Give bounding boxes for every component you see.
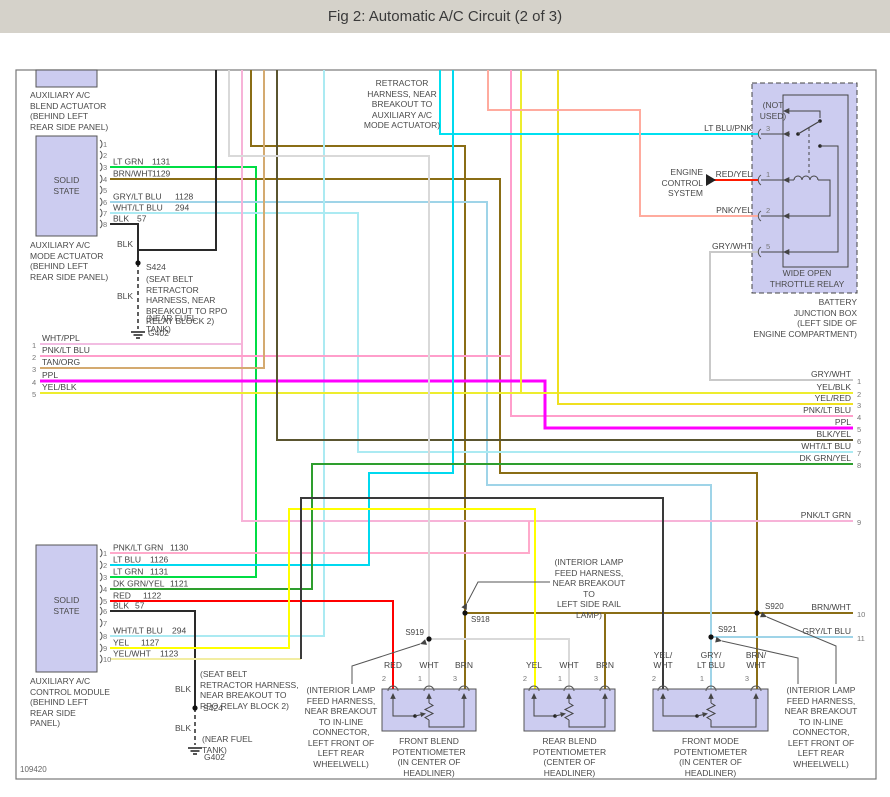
wire-pnk-yel [488, 70, 758, 216]
relay-pin-number: 5 [766, 242, 770, 251]
rear-blend-pot-label: REAR BLEND POTENTIOMETER (CENTER OF HEAD… [524, 736, 615, 778]
mode-actuator-pin-number: 7 [103, 209, 107, 218]
mode-actuator-circuit-number: 1131 [152, 157, 171, 167]
control-module-pin-bracket [100, 597, 102, 605]
control-module-pin-number: 10 [103, 655, 111, 664]
s424-label-lower: S424 [203, 703, 223, 714]
splice-dot-S921 [708, 634, 713, 639]
control-module-pin-label: LT GRN [113, 567, 143, 577]
control-module-pin-number: 6 [103, 607, 107, 616]
pointer-to-S918 [467, 582, 550, 603]
control-module-pin-number: 9 [103, 644, 107, 653]
interior-lamp-note-right: (INTERIOR LAMP FEED HARNESS, NEAR BREAKO… [780, 685, 862, 769]
mode-actuator-pin-bracket [100, 198, 102, 206]
control-module-circuit-number: 1123 [160, 649, 179, 659]
mode-actuator-pin-bracket [100, 163, 102, 171]
mode-actuator-pin-bracket [100, 220, 102, 228]
mode-actuator-pin-number: 8 [103, 220, 107, 229]
g402-label-lower: G402 [204, 752, 225, 763]
right-pin-label: YEL/RED [815, 393, 851, 403]
pot-pin-number: 1 [558, 674, 562, 683]
interior-lamp-rail-note: (INTERIOR LAMP FEED HARNESS, NEAR BREAKO… [548, 557, 630, 620]
interior-lamp-note-left: (INTERIOR LAMP FEED HARNESS, NEAR BREAKO… [300, 685, 382, 769]
mode-actuator-pin-label: BRN/WHT [113, 169, 153, 179]
wire-dk-grn-yel-1121 [110, 464, 853, 589]
pot-pin-wire-label: BRN/WHT [746, 650, 767, 670]
relay-pin-number: 1 [766, 170, 770, 179]
blend-actuator-box [36, 70, 97, 87]
left-pin-label: PPL [42, 370, 58, 380]
retractor-harness-note: RETRACTOR HARNESS, NEAR BREAKOUT TO AUXI… [352, 78, 452, 131]
mode-actuator-pin-bracket [100, 140, 102, 148]
mode-actuator-pin-number: 3 [103, 163, 107, 172]
control-module-circuit-number: 1127 [141, 638, 160, 648]
right-pin-label: GRY/WHT [811, 369, 851, 379]
right-pin-label: PPL [835, 417, 851, 427]
pot-pin-wire-label: BRN [455, 660, 473, 670]
control-module-pin-bracket [100, 573, 102, 581]
pot-pin-wire-label: BRN [596, 660, 614, 670]
right-pin-label: BLK/YEL [817, 429, 852, 439]
control-module-pin-label: WHT/LT BLU [113, 626, 163, 636]
pot-pin-wire-label: RED [384, 660, 402, 670]
relay-wire-label: PNK/YEL [716, 205, 752, 215]
pot-pin-number: 3 [453, 674, 457, 683]
control-module-pin-bracket [100, 561, 102, 569]
right-pin-number: 4 [857, 413, 861, 422]
mode-actuator-circuit-number: 1128 [175, 192, 194, 202]
splice-dot-S918 [462, 610, 467, 615]
mode-actuator-circuit-number: 1129 [152, 169, 171, 179]
control-module-pin-bracket [100, 549, 102, 557]
pot-pin-number: 3 [594, 674, 598, 683]
control-module-label: AUXILIARY A/C CONTROL MODULE (BEHIND LEF… [30, 676, 142, 729]
pot-pin-number: 2 [382, 674, 386, 683]
blk-label-3: BLK [175, 684, 191, 695]
mode-actuator-pin-bracket [100, 151, 102, 159]
wire-lt-grn-1131 [110, 167, 256, 577]
s424-label-upper: S424 [146, 262, 166, 273]
left-pin-label: YEL/BLK [42, 382, 77, 392]
mode-actuator-pin-label: LT GRN [113, 157, 143, 167]
splice-label-S918: S918 [471, 615, 490, 624]
left-pin-number: 4 [32, 378, 36, 387]
splice-dot-S424 [192, 705, 197, 710]
right-pin-number: 8 [857, 461, 861, 470]
pot-pin-number: 2 [523, 674, 527, 683]
control-module-pin-label: YEL [113, 638, 129, 648]
pot-pin-wire-label: YEL/WHT [653, 650, 673, 670]
wire-pnk-lt-blu [40, 356, 853, 416]
relay-not-used-label: (NOT USED) [756, 100, 790, 121]
right-pin-number: 6 [857, 437, 861, 446]
pot-pin-number: 1 [700, 674, 704, 683]
mode-actuator-pin-label: BLK [113, 214, 129, 224]
splice-label-S919: S919 [405, 628, 424, 637]
mode-actuator-solid-state: SOLID STATE [36, 175, 97, 196]
splice-dot-S920 [754, 610, 759, 615]
engine-control-arrow [706, 174, 716, 186]
control-module-circuit-number: 1126 [150, 555, 169, 565]
battery-junction-box-label: BATTERY JUNCTION BOX (LEFT SIDE OF ENGIN… [743, 297, 857, 339]
right-pin-label: WHT/LT BLU [801, 441, 851, 451]
mode-actuator-circuit-number: 294 [175, 203, 189, 213]
right-pin-number: 7 [857, 449, 861, 458]
blk-label-4: BLK [175, 723, 191, 734]
relay-pin-number: 2 [766, 206, 770, 215]
control-module-pin-bracket [100, 585, 102, 593]
control-module-pin-bracket [100, 619, 102, 627]
blk-label-2: BLK [117, 291, 133, 302]
control-module-pin-number: 4 [103, 585, 107, 594]
control-module-pin-number: 2 [103, 561, 107, 570]
control-module-pin-label: YEL/WHT [113, 649, 151, 659]
pot-pin-wire-label: WHT [559, 660, 578, 670]
mode-actuator-pin-label: GRY/LT BLU [113, 192, 162, 202]
splice-label-S921: S921 [718, 625, 737, 634]
pot-pin-wire-label: WHT [419, 660, 438, 670]
pot-pin-wire-label: GRY/LT BLU [697, 650, 725, 670]
control-module-pin-number: 5 [103, 597, 107, 606]
right-pin-number: 2 [857, 390, 861, 399]
left-pin-number: 3 [32, 365, 36, 374]
mode-actuator-pin-bracket [100, 175, 102, 183]
control-module-pin-label: PNK/LT GRN [113, 543, 163, 553]
right-pin-label: PNK/LT GRN [801, 510, 851, 520]
right-pin-number: 5 [857, 425, 861, 434]
control-module-solid-state: SOLID STATE [36, 595, 97, 616]
mode-actuator-pin-bracket [100, 209, 102, 217]
right-pin-label: BRN/WHT [811, 602, 851, 612]
right-pin-number: 3 [857, 401, 861, 410]
control-module-pin-number: 8 [103, 632, 107, 641]
right-pin-label: YEL/BLK [817, 382, 852, 392]
front-blend-pot-label: FRONT BLEND POTENTIOMETER (IN CENTER OF … [382, 736, 476, 778]
control-module-circuit-number: 294 [172, 626, 186, 636]
control-module-pin-bracket [100, 632, 102, 640]
mode-actuator-pin-number: 1 [103, 140, 107, 149]
g402-label-upper: G402 [148, 328, 169, 339]
control-module-pin-bracket [100, 655, 102, 663]
wiring-diagram-page: Fig 2: Automatic A/C Circuit (2 of 3) S9… [0, 0, 890, 797]
left-pin-label: PNK/LT BLU [42, 345, 90, 355]
right-pin-label: PNK/LT BLU [803, 405, 851, 415]
relay-wire-label: LT BLU/PNK [704, 123, 752, 133]
mode-actuator-pin-bracket [100, 186, 102, 194]
pot-pin-wire-label: YEL [526, 660, 542, 670]
control-module-circuit-number: 1122 [143, 591, 162, 601]
pot-pin-number: 2 [652, 674, 656, 683]
pot-pin-number: 1 [418, 674, 422, 683]
control-module-pin-number: 7 [103, 619, 107, 628]
mode-actuator-pin-label: WHT/LT BLU [113, 203, 163, 213]
blk-label-1: BLK [117, 239, 133, 250]
control-module-circuit-number: 1131 [150, 567, 169, 577]
mode-actuator-circuit-number: 57 [137, 214, 147, 224]
relay-wire-label: RED/YEL [716, 169, 753, 179]
right-pin-number: 9 [857, 518, 861, 527]
control-module-pin-label: DK GRN/YEL [113, 579, 165, 589]
mode-actuator-pin-number: 4 [103, 175, 107, 184]
right-pin-label: DK GRN/YEL [800, 453, 852, 463]
relay-pin-number: 3 [766, 124, 770, 133]
control-module-pin-bracket [100, 607, 102, 615]
right-pin-number: 10 [857, 610, 865, 619]
arrowhead [420, 639, 427, 645]
control-module-circuit-number: 57 [135, 601, 145, 611]
left-pin-number: 5 [32, 390, 36, 399]
left-pin-label: TAN/ORG [42, 357, 80, 367]
control-module-circuit-number: 1130 [170, 543, 189, 553]
relay-wire-label: GRY/WHT [712, 241, 752, 251]
control-module-circuit-number: 1121 [170, 579, 189, 589]
control-module-pin-label: BLK [113, 601, 129, 611]
left-pin-number: 1 [32, 341, 36, 350]
right-pin-number: 1 [857, 377, 861, 386]
pot-pin-number: 3 [745, 674, 749, 683]
splice-dot-S919 [426, 636, 431, 641]
document-id: 109420 [20, 765, 47, 776]
control-module-pin-bracket [100, 644, 102, 652]
wire-wht-s919-pot2 [429, 639, 569, 689]
control-module-pin-number: 3 [103, 573, 107, 582]
control-module-pin-label: LT BLU [113, 555, 141, 565]
left-pin-label: WHT/PPL [42, 333, 80, 343]
control-module-pin-label: RED [113, 591, 131, 601]
relay-name-label: WIDE OPEN THROTTLE RELAY [762, 268, 852, 289]
front-mode-pot-label: FRONT MODE POTENTIOMETER (IN CENTER OF H… [653, 736, 768, 778]
control-module-pin-number: 1 [103, 549, 107, 558]
left-pin-number: 2 [32, 353, 36, 362]
engine-control-system-label: ENGINE CONTROL SYSTEM [655, 167, 703, 199]
mode-actuator-pin-number: 6 [103, 198, 107, 207]
right-pin-number: 11 [857, 634, 865, 643]
mode-actuator-pin-number: 5 [103, 186, 107, 195]
mode-actuator-pin-number: 2 [103, 151, 107, 160]
blend-actuator-label: AUXILIARY A/C BLEND ACTUATOR (BEHIND LEF… [30, 90, 142, 132]
splice-label-S920: S920 [765, 602, 784, 611]
